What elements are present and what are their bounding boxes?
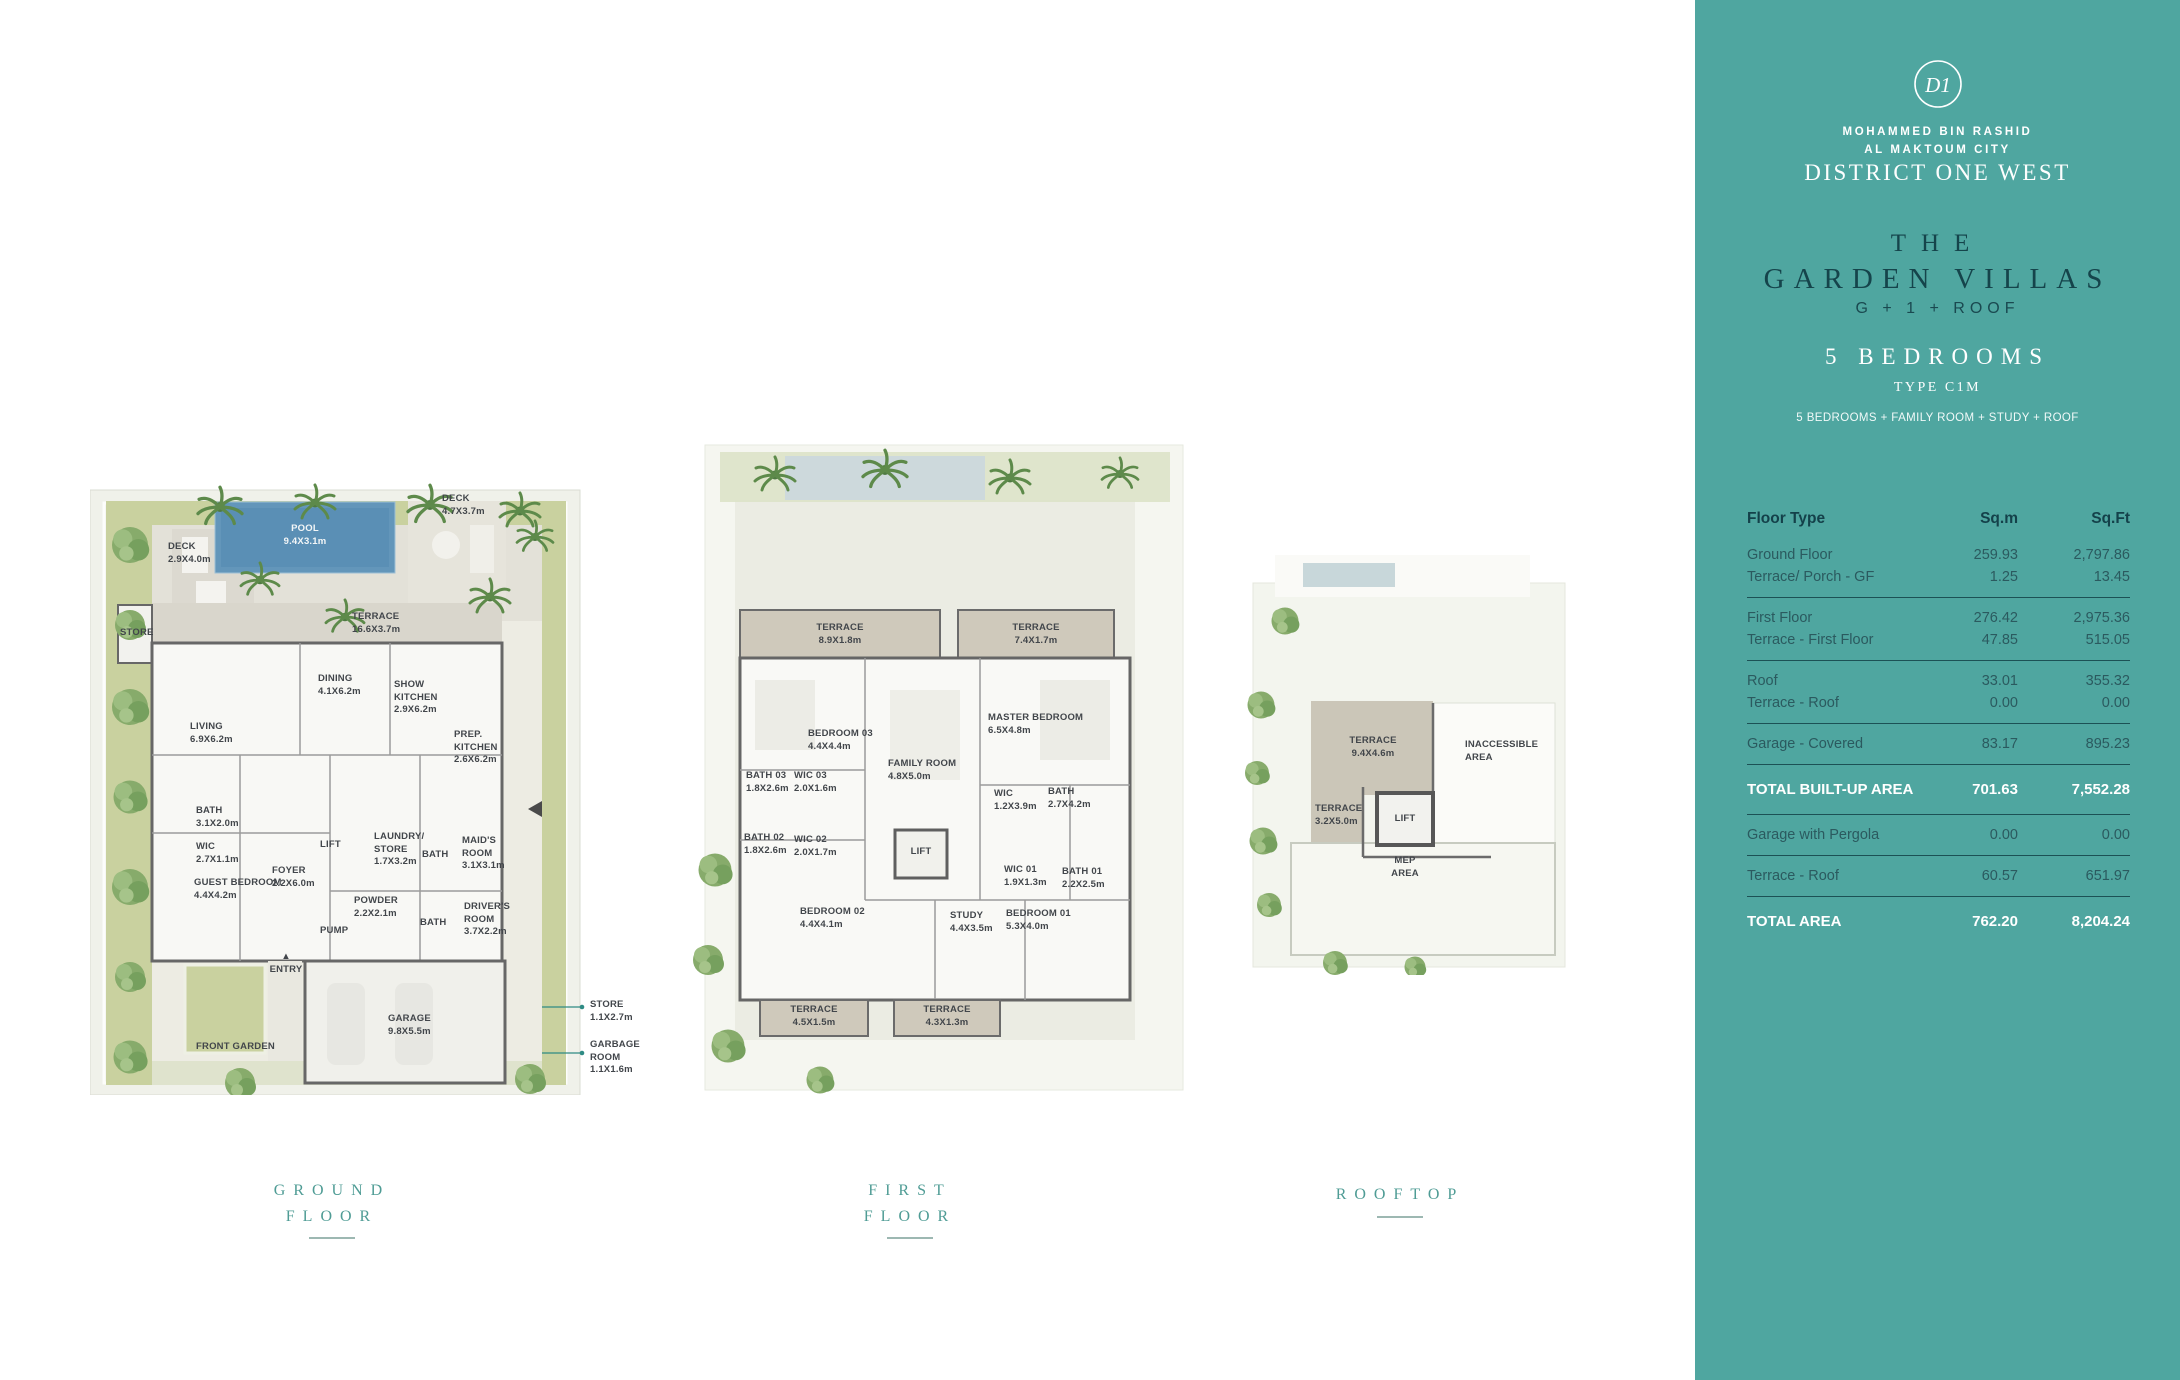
area-table-cell: Terrace - Roof	[1747, 695, 1923, 711]
room-label: TERRACE8.9X1.8m	[816, 622, 863, 647]
room-label: FAMILY ROOM4.8X5.0m	[888, 758, 956, 783]
area-table-cell: 47.85	[1923, 632, 2018, 648]
area-table-cell: Garage - Covered	[1747, 736, 1923, 752]
room-label: STORE1.1X2.7m	[590, 999, 633, 1024]
room-label: TERRACE4.5X1.5m	[790, 1004, 837, 1029]
villa-type: TYPE C1M	[1695, 380, 2180, 396]
room-label: TERRACE4.3X1.3m	[923, 1004, 970, 1029]
rooftop-title: ROOFTOP	[1290, 1182, 1510, 1218]
table-divider	[1747, 764, 2130, 765]
room-label: WIC 011.9X1.3m	[1004, 864, 1047, 889]
villa-title: THE GARDEN VILLAS	[1695, 230, 2180, 296]
area-table-cell: 2,797.86	[2018, 547, 2130, 563]
org-line2: AL MAKTOUM CITY	[1695, 142, 2180, 160]
area-table-total-row: TOTAL BUILT-UP AREA701.637,552.28	[1747, 774, 2130, 805]
area-table-total-row: TOTAL AREA762.208,204.24	[1747, 906, 2130, 937]
area-table-cell: 355.32	[2018, 673, 2130, 689]
area-table-header: Floor Type Sq.m Sq.Ft	[1747, 510, 2130, 528]
room-label: WIC 022.0X1.7m	[794, 834, 837, 859]
plan-title-line: GROUND	[222, 1178, 442, 1204]
area-table-row: Garage - Covered83.17895.23	[1747, 733, 2130, 755]
room-label: TERRACE3.2X5.0m	[1315, 803, 1362, 828]
area-table-row: Terrace - First Floor47.85515.05	[1747, 629, 2130, 651]
room-label: PUMP	[320, 925, 348, 938]
ground-floor-title: GROUNDFLOOR	[222, 1178, 442, 1239]
area-table-cell: First Floor	[1747, 610, 1923, 626]
area-table-row: Terrace - Roof60.57651.97	[1747, 865, 2130, 887]
room-label: INACCESSIBLEAREA	[1465, 739, 1538, 764]
area-table-cell: 651.97	[2018, 868, 2130, 884]
area-table-row: First Floor276.422,975.36	[1747, 607, 2130, 629]
first-floor-plan: TERRACE8.9X1.8mTERRACE7.4X1.7mBEDROOM 03…	[680, 440, 1200, 1095]
room-label: BATH	[420, 917, 446, 930]
villa-config: G + 1 + ROOF	[1695, 300, 2180, 318]
room-label: BEDROOM 034.4X4.4m	[808, 728, 873, 753]
ground-floor-labels: DECK2.9X4.0mPOOL9.4X3.1mDECK4.7X3.7mSTOR…	[90, 445, 675, 1095]
area-table: Floor Type Sq.m Sq.Ft Ground Floor259.93…	[1747, 510, 2130, 937]
header-floor-type: Floor Type	[1747, 510, 1923, 528]
area-table-body: Ground Floor259.932,797.86Terrace/ Porch…	[1747, 544, 2130, 937]
room-label: BATH3.1X2.0m	[196, 805, 239, 830]
area-table-row: Terrace/ Porch - GF1.2513.45	[1747, 566, 2130, 588]
info-sidebar: D1 MOHAMMED BIN RASHID AL MAKTOUM CITY D…	[1695, 0, 2180, 1380]
area-table-cell: Roof	[1747, 673, 1923, 689]
plan-title-line: FLOOR	[800, 1204, 1020, 1230]
area-table-cell: 0.00	[2018, 695, 2130, 711]
table-divider	[1747, 855, 2130, 856]
area-table-row: Ground Floor259.932,797.86	[1747, 544, 2130, 566]
area-table-cell: 0.00	[1923, 827, 2018, 843]
room-label: GUEST BEDROOM4.4X4.2m	[194, 877, 282, 902]
table-divider	[1747, 896, 2130, 897]
district-one-logo: D1	[1695, 58, 2180, 115]
area-table-cell: TOTAL AREA	[1747, 913, 1923, 930]
brochure-page: DECK2.9X4.0mPOOL9.4X3.1mDECK4.7X3.7mSTOR…	[0, 0, 2180, 1380]
room-label: STORE	[120, 627, 154, 640]
room-label: WIC1.2X3.9m	[994, 788, 1037, 813]
room-label: MASTER BEDROOM6.5X4.8m	[988, 712, 1083, 737]
area-table-cell: 701.63	[1923, 781, 2018, 798]
villa-features: 5 BEDROOMS + FAMILY ROOM + STUDY + ROOF	[1695, 412, 2180, 424]
plan-title-line: FLOOR	[222, 1204, 442, 1230]
table-divider	[1747, 723, 2130, 724]
room-label: LIFT	[1395, 813, 1416, 826]
table-divider	[1747, 814, 2130, 815]
room-label: DECK2.9X4.0m	[168, 541, 211, 566]
room-label: BEDROOM 015.3X4.0m	[1006, 908, 1071, 933]
area-table-cell: 895.23	[2018, 736, 2130, 752]
ground-floor-plan: DECK2.9X4.0mPOOL9.4X3.1mDECK4.7X3.7mSTOR…	[90, 445, 675, 1095]
room-label: BEDROOM 024.4X4.1m	[800, 906, 865, 931]
rooftop-labels: TERRACE9.4X4.6mINACCESSIBLEAREATERRACE3.…	[1245, 555, 1575, 975]
room-label: ▲ENTRY	[270, 951, 303, 976]
area-table-cell: 762.20	[1923, 913, 2018, 930]
room-label: POWDER2.2X2.1m	[354, 895, 398, 920]
room-label: LIVING6.9X6.2m	[190, 721, 233, 746]
room-label: BATH 012.2X2.5m	[1062, 866, 1105, 891]
area-table-cell: 0.00	[1923, 695, 2018, 711]
room-label: SHOWKITCHEN2.9X6.2m	[394, 679, 438, 717]
room-label: DECK4.7X3.7m	[442, 493, 485, 518]
room-label: LIFT	[320, 839, 341, 852]
room-label: FRONT GARDEN	[196, 1041, 275, 1054]
area-table-cell: 0.00	[2018, 827, 2130, 843]
area-table-cell: 13.45	[2018, 569, 2130, 585]
table-divider	[1747, 597, 2130, 598]
room-label: GARAGE9.8X5.5m	[388, 1013, 431, 1038]
area-table-cell: TOTAL BUILT-UP AREA	[1747, 781, 1923, 798]
room-label: POOL9.4X3.1m	[284, 523, 327, 548]
area-table-row: Garage with Pergola0.000.00	[1747, 824, 2130, 846]
area-table-cell: 259.93	[1923, 547, 2018, 563]
area-table-cell: 8,204.24	[2018, 913, 2130, 930]
area-table-cell: 83.17	[1923, 736, 2018, 752]
rooftop-plan: TERRACE9.4X4.6mINACCESSIBLEAREATERRACE3.…	[1245, 555, 1575, 975]
room-label: PREP.KITCHEN2.6X6.2m	[454, 729, 498, 767]
area-table-cell: 1.25	[1923, 569, 2018, 585]
development-name: DISTRICT ONE WEST	[1695, 160, 2180, 186]
area-table-cell: 7,552.28	[2018, 781, 2130, 798]
first-floor-labels: TERRACE8.9X1.8mTERRACE7.4X1.7mBEDROOM 03…	[680, 440, 1200, 1095]
table-divider	[1747, 660, 2130, 661]
villa-title-line2: GARDEN VILLAS	[1695, 263, 2180, 296]
villa-title-line1: THE	[1695, 230, 2180, 258]
area-table-cell: 515.05	[2018, 632, 2130, 648]
room-label: TERRACE16.6X3.7m	[352, 611, 400, 636]
area-table-cell: Terrace - Roof	[1747, 868, 1923, 884]
room-label: LAUNDRY/STORE1.7X3.2m	[374, 831, 424, 869]
room-label: LIFT	[911, 846, 932, 859]
first-floor-title: FIRSTFLOOR	[800, 1178, 1020, 1239]
area-table-row: Roof33.01355.32	[1747, 670, 2130, 692]
area-table-cell: Garage with Pergola	[1747, 827, 1923, 843]
plan-title-line: FIRST	[800, 1178, 1020, 1204]
room-label: GARBAGEROOM1.1X1.6m	[590, 1039, 640, 1077]
room-label: MAID'SROOM3.1X3.1m	[462, 835, 505, 873]
villa-bedrooms: 5 BEDROOMS	[1695, 344, 2180, 370]
header-sqm: Sq.m	[1923, 510, 2018, 528]
room-label: BATH2.7X4.2m	[1048, 786, 1091, 811]
area-table-cell: Terrace/ Porch - GF	[1747, 569, 1923, 585]
area-table-row: Terrace - Roof0.000.00	[1747, 692, 2130, 714]
area-table-cell: 33.01	[1923, 673, 2018, 689]
room-label: TERRACE7.4X1.7m	[1012, 622, 1059, 647]
room-label: DINING4.1X6.2m	[318, 673, 361, 698]
room-label: BATH 021.8X2.6m	[744, 832, 787, 857]
room-label: WIC2.7X1.1m	[196, 841, 239, 866]
room-label: MEPAREA	[1391, 855, 1419, 880]
room-label: WIC 032.0X1.6m	[794, 770, 837, 795]
room-label: BATH	[422, 849, 448, 862]
area-table-cell: 2,975.36	[2018, 610, 2130, 626]
area-table-cell: Terrace - First Floor	[1747, 632, 1923, 648]
org-line1: MOHAMMED BIN RASHID	[1695, 124, 2180, 142]
room-label: TERRACE9.4X4.6m	[1349, 735, 1396, 760]
room-label: BATH 031.8X2.6m	[746, 770, 789, 795]
area-table-cell: Ground Floor	[1747, 547, 1923, 563]
logo-monogram: D1	[1924, 73, 1951, 97]
area-table-cell: 60.57	[1923, 868, 2018, 884]
header-sqft: Sq.Ft	[2018, 510, 2130, 528]
area-table-cell: 276.42	[1923, 610, 2018, 626]
plan-title-line: ROOFTOP	[1290, 1182, 1510, 1208]
room-label: STUDY4.4X3.5m	[950, 910, 993, 935]
room-label: DRIVER'SROOM3.7X2.2m	[464, 901, 510, 939]
org-name: MOHAMMED BIN RASHID AL MAKTOUM CITY	[1695, 124, 2180, 160]
